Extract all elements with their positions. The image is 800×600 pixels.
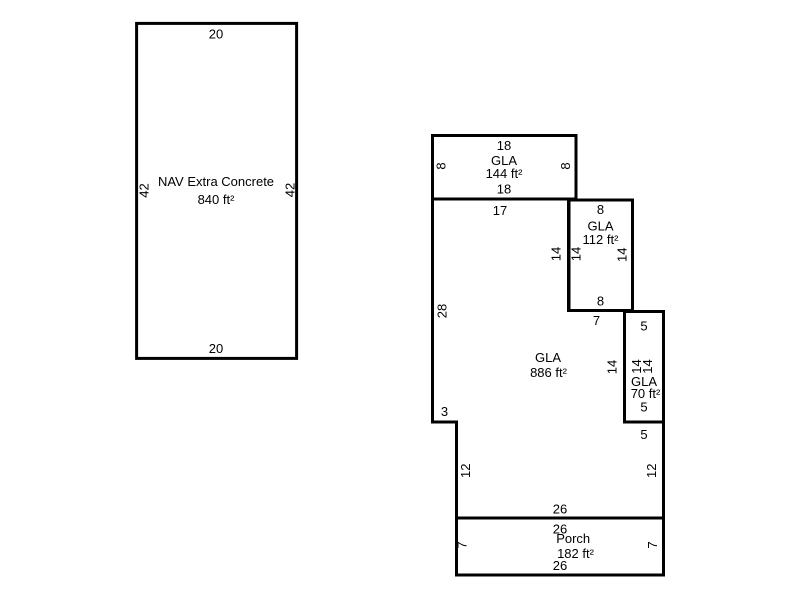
svg-text:26: 26 <box>553 502 567 517</box>
svg-text:7: 7 <box>645 541 660 548</box>
svg-text:42: 42 <box>137 183 152 197</box>
svg-text:8: 8 <box>597 294 604 309</box>
svg-text:14: 14 <box>605 360 620 374</box>
svg-text:14: 14 <box>549 247 564 261</box>
svg-text:20: 20 <box>209 341 223 356</box>
svg-text:18: 18 <box>497 182 511 197</box>
svg-text:28: 28 <box>435 304 450 318</box>
svg-text:12: 12 <box>458 464 473 478</box>
svg-text:8: 8 <box>434 162 449 169</box>
svg-text:12: 12 <box>644 464 659 478</box>
svg-text:18: 18 <box>497 138 511 153</box>
svg-text:14: 14 <box>615 248 630 262</box>
svg-text:8: 8 <box>558 162 573 169</box>
svg-text:20: 20 <box>209 27 223 42</box>
svg-text:NAV Extra Concrete: NAV Extra Concrete <box>158 174 274 189</box>
svg-text:42: 42 <box>283 183 298 197</box>
svg-text:5: 5 <box>640 319 647 334</box>
svg-text:14: 14 <box>569 247 584 261</box>
svg-text:7: 7 <box>593 313 600 328</box>
svg-text:GLA: GLA <box>535 350 561 365</box>
svg-text:112 ft²: 112 ft² <box>583 232 620 247</box>
svg-text:144 ft²: 144 ft² <box>486 166 524 181</box>
svg-text:8: 8 <box>597 202 604 217</box>
svg-text:5: 5 <box>640 400 647 415</box>
svg-text:3: 3 <box>441 404 448 419</box>
svg-text:5: 5 <box>640 427 647 442</box>
svg-text:14: 14 <box>640 359 655 373</box>
svg-text:840 ft²: 840 ft² <box>198 192 236 207</box>
svg-text:886 ft²: 886 ft² <box>530 365 568 380</box>
svg-text:7: 7 <box>455 541 470 548</box>
svg-text:17: 17 <box>493 203 507 218</box>
svg-text:26: 26 <box>553 558 567 573</box>
svg-text:Porch: Porch <box>556 531 590 546</box>
